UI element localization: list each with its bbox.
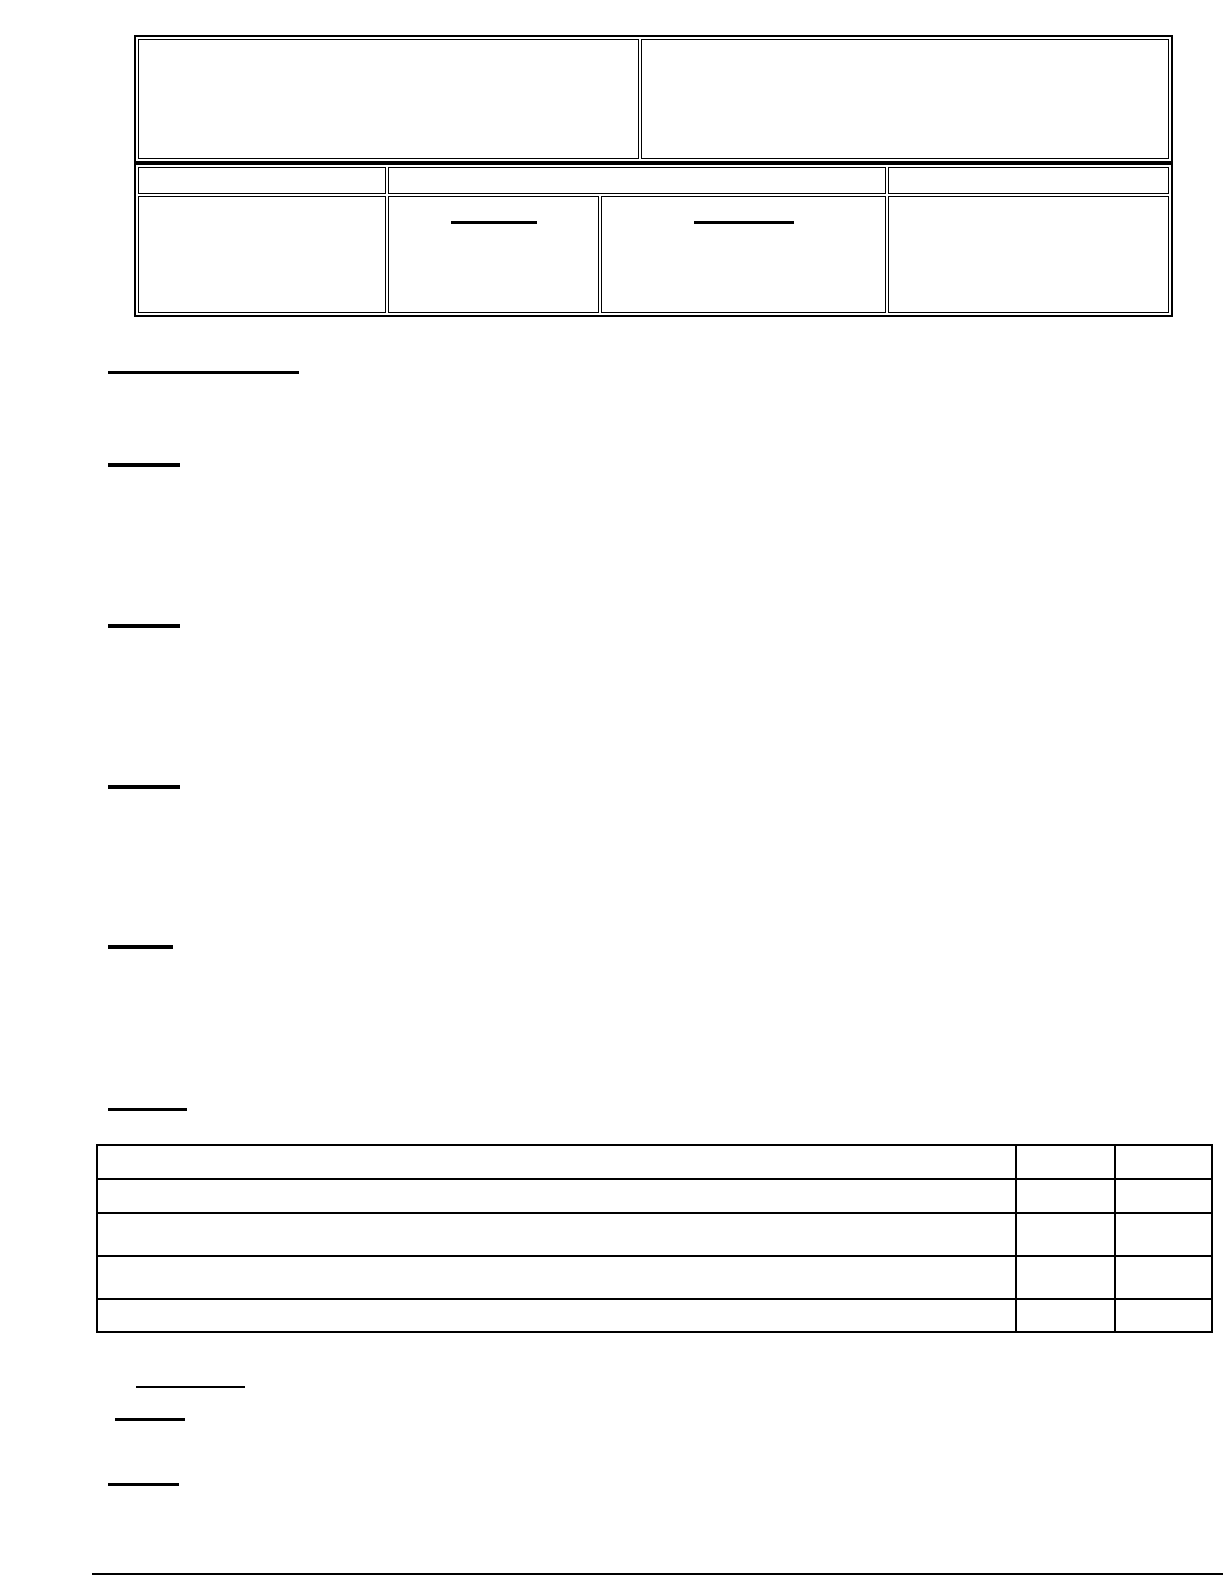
table-row bbox=[97, 1213, 1212, 1256]
section-heading-underline-6 bbox=[108, 1108, 187, 1111]
table-row bbox=[97, 1256, 1212, 1299]
info-header-cell-3 bbox=[888, 167, 1169, 194]
top-header-table bbox=[134, 35, 1173, 163]
checklist-item-cell bbox=[97, 1256, 1016, 1299]
blank-underline bbox=[694, 221, 794, 224]
bottom-underline-2 bbox=[115, 1418, 185, 1421]
footer-rule bbox=[92, 1573, 1223, 1575]
checklist-item-cell bbox=[97, 1145, 1016, 1179]
table-row bbox=[97, 1179, 1212, 1213]
info-body-cell-3 bbox=[601, 196, 886, 313]
checklist-answer2-cell bbox=[1115, 1213, 1212, 1256]
info-body-cell-1 bbox=[138, 196, 386, 313]
checklist-item-cell bbox=[97, 1179, 1016, 1213]
section-heading-underline-1 bbox=[108, 371, 299, 374]
checklist-answer1-cell bbox=[1016, 1256, 1115, 1299]
table-row bbox=[97, 1299, 1212, 1332]
checklist-item-cell bbox=[97, 1299, 1016, 1332]
checklist-item-cell bbox=[97, 1213, 1016, 1256]
bottom-underline-3 bbox=[108, 1483, 179, 1486]
checklist-answer1-cell bbox=[1016, 1179, 1115, 1213]
info-header-cell-1 bbox=[138, 167, 386, 194]
section-heading-underline-5 bbox=[108, 945, 173, 949]
checklist-answer2-cell bbox=[1115, 1145, 1212, 1179]
table-row bbox=[97, 1145, 1212, 1179]
checklist-answer2-cell bbox=[1115, 1256, 1212, 1299]
section-heading-underline-4 bbox=[108, 785, 180, 789]
table-row bbox=[138, 167, 1169, 194]
table-row bbox=[138, 196, 1169, 313]
top-header-left-cell bbox=[138, 39, 639, 159]
table-row bbox=[138, 39, 1169, 159]
info-body-cell-2 bbox=[388, 196, 599, 313]
checklist-answer1-cell bbox=[1016, 1299, 1115, 1332]
blank-underline bbox=[451, 221, 537, 224]
info-header-cell-2 bbox=[388, 167, 886, 194]
checklist-answer1-cell bbox=[1016, 1145, 1115, 1179]
checklist-table bbox=[96, 1144, 1213, 1333]
document-page bbox=[0, 0, 1225, 1585]
info-body-cell-4 bbox=[888, 196, 1169, 313]
section-heading-underline-3 bbox=[108, 624, 180, 628]
section-heading-underline-2 bbox=[108, 463, 180, 467]
top-header-right-cell bbox=[641, 39, 1169, 159]
checklist-answer2-cell bbox=[1115, 1179, 1212, 1213]
bottom-underline-1 bbox=[136, 1386, 245, 1388]
info-table bbox=[134, 163, 1173, 317]
checklist-answer2-cell bbox=[1115, 1299, 1212, 1332]
checklist-answer1-cell bbox=[1016, 1213, 1115, 1256]
